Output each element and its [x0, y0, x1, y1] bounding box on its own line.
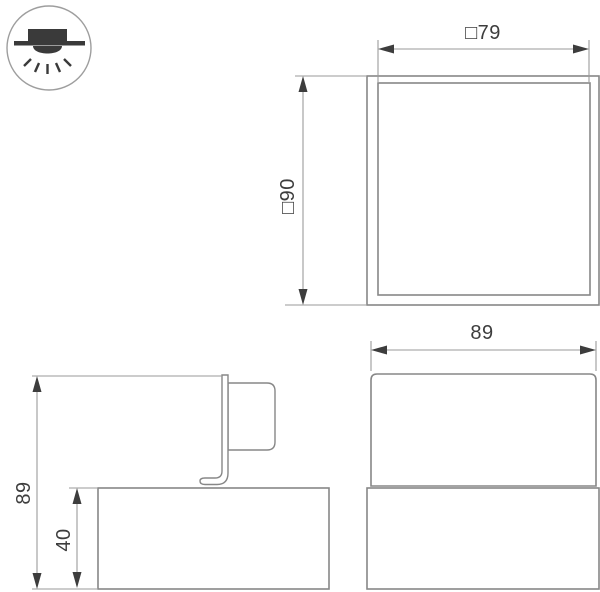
arrowhead-left — [378, 45, 394, 54]
dim-front-width: 89 — [371, 322, 596, 371]
plan-outer-square — [367, 76, 599, 305]
top-view: □79 □90 — [277, 22, 599, 305]
dim-top-height: □90 — [277, 76, 366, 305]
dim-label-side-base-height: 40 — [53, 528, 75, 551]
dim-label-top-height: □90 — [277, 178, 299, 214]
mount-bracket — [200, 375, 228, 485]
dim-side-base-height: 40 — [53, 488, 97, 588]
icon-fixture-body — [28, 29, 67, 42]
arrowhead-right — [580, 346, 596, 355]
front-view: 89 — [367, 322, 599, 589]
icon-light-rays — [24, 59, 71, 74]
body-side — [98, 488, 329, 589]
arrowhead-up — [73, 488, 82, 504]
plan-inner-square — [378, 83, 590, 295]
arrowhead-down — [299, 289, 308, 305]
arrowhead-up — [299, 76, 308, 92]
arrowhead-down — [33, 573, 42, 589]
connector-box — [228, 383, 275, 450]
dim-top-width: □79 — [378, 22, 589, 82]
drawing-canvas: □79 □90 — [0, 0, 600, 592]
body-front-upper — [371, 374, 596, 486]
dim-label-side-height: 89 — [13, 481, 35, 504]
arrowhead-right — [573, 45, 589, 54]
arrowhead-left — [371, 346, 387, 355]
dim-label-top-width: □79 — [465, 22, 501, 44]
arrowhead-up — [33, 376, 42, 392]
dimension-drawing: □79 □90 — [0, 0, 600, 592]
mounting-type-icon — [7, 6, 91, 90]
arrowhead-down — [73, 572, 82, 588]
dim-side-height: 89 — [13, 376, 222, 589]
body-front-lower — [367, 488, 599, 589]
icon-lamp-dome — [33, 46, 62, 54]
dim-label-front-width: 89 — [470, 322, 493, 344]
icon-ceiling-line — [14, 41, 85, 46]
side-view: 89 40 — [13, 375, 329, 589]
